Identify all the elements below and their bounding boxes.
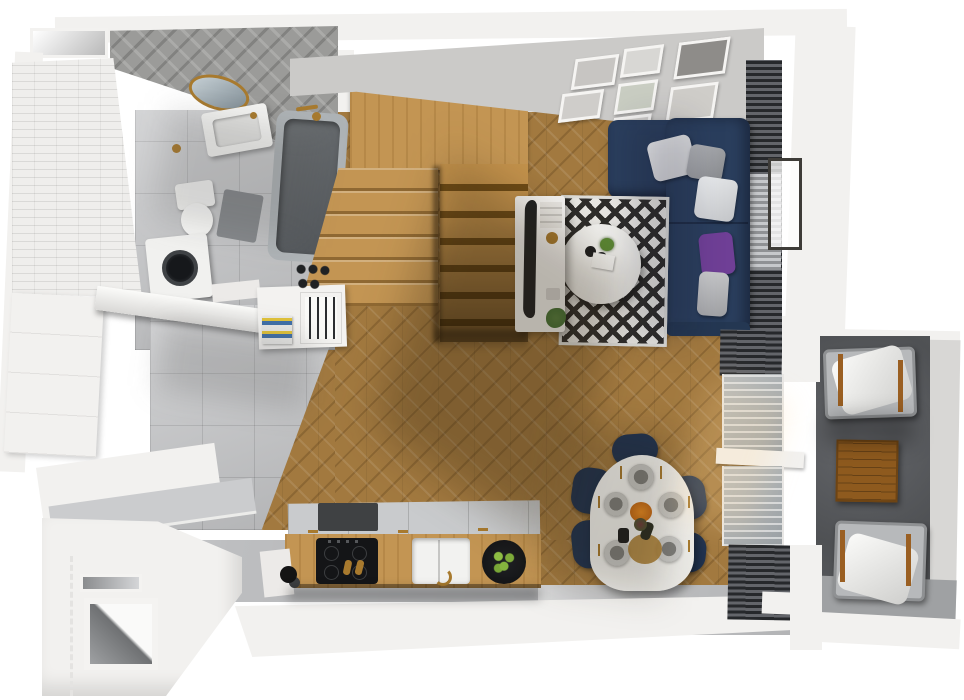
balcony-floor-light-edge	[817, 576, 957, 627]
outer-walls	[0, 0, 964, 700]
dining-chair-left-2	[570, 518, 615, 570]
dining-chair-right-2	[666, 530, 708, 574]
window-wall-corner	[782, 316, 820, 382]
utensil-2	[354, 559, 364, 575]
lounge-cushion-bottom	[835, 531, 920, 607]
shower-fixture	[296, 104, 318, 111]
balcony-right-wall	[924, 340, 961, 627]
washer-door	[162, 250, 198, 286]
balcony-chair-shadow	[828, 416, 912, 444]
centerpiece-vase	[634, 518, 647, 531]
top-outer-wall	[55, 9, 847, 43]
chair-top-wood-rail-2	[898, 360, 903, 412]
under-stair-shadow	[436, 330, 528, 352]
kitchen-sink	[412, 538, 470, 584]
living-wood-floor	[330, 112, 762, 550]
stair-right-flight	[440, 164, 528, 342]
cutlery-3	[598, 496, 600, 508]
bathtub	[267, 110, 349, 265]
sink-faucet	[250, 112, 257, 119]
hall-tile-floor	[150, 305, 330, 530]
radiator-dark-bottom	[727, 544, 792, 620]
gallery-frame-7	[610, 113, 652, 142]
stair-right-flight-shadow	[440, 164, 528, 342]
island-handle-1	[308, 530, 318, 533]
bottom-left-wall	[36, 443, 224, 537]
window-frame	[768, 158, 802, 250]
entrance-block	[42, 518, 242, 696]
toilet-tank	[174, 179, 215, 210]
entrance-niche	[84, 598, 158, 670]
sink-faucet-brass	[434, 568, 452, 586]
sofa-armrest	[666, 322, 750, 336]
fruit-apples	[490, 548, 518, 576]
top-left-wall-window	[30, 28, 108, 58]
cutlery-6	[688, 540, 690, 552]
kitchen	[0, 0, 964, 700]
light-and-shadow	[0, 0, 964, 700]
plate-right-1	[658, 492, 684, 518]
window-sill-bar	[716, 448, 805, 469]
island-front-shadow	[288, 588, 540, 600]
staircase	[0, 0, 964, 700]
dining-chair-right-1	[665, 474, 709, 523]
table-vase-1	[585, 246, 596, 257]
bathroom-stairs-divider-wall	[332, 50, 354, 342]
cutlery-drawer	[300, 292, 342, 344]
dining-table	[590, 455, 694, 591]
sink-basin	[212, 112, 262, 148]
right-outer-wall	[784, 25, 855, 349]
open-door-panel	[94, 286, 274, 335]
bathroom-tile-floor	[135, 110, 335, 350]
dining-area	[0, 0, 964, 700]
bottom-outer-wall	[235, 595, 810, 657]
cutlery-1	[620, 466, 622, 479]
shower-head	[312, 112, 321, 121]
tv-speaker	[546, 288, 560, 300]
living-room	[0, 0, 964, 700]
gallery-frame-5	[614, 79, 659, 115]
plate-top	[628, 464, 654, 490]
mirror-brass	[185, 68, 254, 118]
island-handle-2	[398, 530, 408, 533]
tv-gold-ornament	[546, 232, 558, 244]
centerpiece-wine-bottle	[639, 521, 655, 541]
sofa-main	[666, 118, 750, 332]
lounge-chair-bottom	[833, 520, 928, 601]
island-handle-3	[478, 528, 488, 531]
coffee-grinder	[280, 566, 297, 583]
bottom-left-worktop	[48, 478, 256, 542]
island-cabinet-tops	[288, 500, 540, 540]
sofa-chaise	[608, 120, 694, 198]
kitchen-marble-floor	[58, 540, 540, 602]
table-plant	[600, 238, 614, 251]
entrance-dashed-edge	[70, 556, 74, 696]
dining-gray-floor	[538, 585, 808, 635]
balcony-top-wall	[818, 329, 960, 349]
cutlery-2	[660, 466, 662, 479]
bath-mat	[216, 189, 264, 243]
living-top-wall	[290, 28, 764, 138]
entrance-letter-slot	[80, 574, 142, 592]
balcony-door-glass-1	[722, 374, 784, 454]
vanity-sink	[201, 103, 274, 158]
tv-sideboard	[515, 196, 565, 332]
window-wall-bottom	[790, 545, 822, 650]
balcony	[0, 0, 964, 700]
floors	[0, 0, 964, 700]
centerpiece-gold-tray	[628, 534, 662, 564]
cushion-white-2	[693, 175, 738, 222]
venetian-blinds	[746, 60, 782, 334]
hall-shadow	[156, 320, 314, 410]
coffee-table	[561, 224, 641, 304]
sofa-cast-shadow	[632, 120, 692, 340]
washer-shelf	[211, 280, 261, 303]
stair-gap-shadow	[433, 166, 441, 342]
chair-bottom-wood-rail-1	[840, 530, 845, 582]
stair-cast-shadow	[371, 159, 629, 542]
gallery-frame-6	[665, 82, 719, 125]
wall-hook-knobs	[296, 264, 330, 290]
dining-chair-top	[611, 432, 659, 467]
gallery-frame-4	[558, 89, 604, 123]
bookshelf-cabinet	[257, 284, 347, 349]
left-tall-cabinets	[4, 293, 104, 458]
plate-left-2	[604, 540, 630, 566]
burner-1	[324, 546, 339, 561]
utensil-1	[343, 559, 353, 575]
bathroom	[0, 0, 964, 700]
bathtub-basin	[275, 118, 340, 256]
gallery-frame-8	[656, 121, 702, 155]
dining-wood-floor	[538, 540, 738, 588]
lounge-cushion-top	[830, 343, 915, 417]
plate-right-2	[656, 536, 682, 562]
cooktop-controls	[328, 540, 364, 543]
diamond-rug	[559, 195, 670, 347]
bathroom-herringbone-wall	[110, 26, 338, 186]
plate-left-1	[604, 492, 628, 516]
cooktop	[316, 538, 378, 584]
throw-blanket	[697, 271, 730, 317]
lounge-chair-top	[823, 346, 917, 419]
stair-landing	[350, 86, 528, 170]
hall-wood-floor	[210, 335, 335, 530]
stair-left-flight	[300, 168, 438, 306]
burner-3	[324, 565, 339, 580]
dining-cast-shadow	[541, 420, 682, 595]
gallery-frame-2	[620, 44, 664, 78]
bottom-right-balcony-wall	[794, 611, 960, 650]
balcony-door-glass-2	[722, 466, 784, 546]
bathroom-subway-wall	[12, 58, 142, 298]
island-hood	[318, 503, 378, 531]
bathroom-shadow	[152, 108, 319, 242]
gallery-frame-3	[673, 36, 730, 79]
toilet-paper-holder	[172, 144, 181, 153]
balcony-table	[835, 439, 898, 502]
cushion-gray	[685, 143, 726, 183]
burner-2	[352, 546, 367, 561]
chair-bottom-wood-rail-2	[906, 534, 911, 586]
window-wall-stub	[762, 591, 793, 614]
island-worktop	[285, 534, 541, 588]
balcony-floor	[816, 336, 930, 626]
washing-machine	[145, 233, 213, 303]
centerpiece-jar	[618, 528, 629, 543]
table-book	[591, 252, 615, 271]
tv-screen	[523, 200, 537, 318]
floorplan-scene	[0, 0, 964, 700]
sofa-seam	[668, 222, 748, 224]
sun-patch	[668, 376, 791, 535]
books-stack	[262, 316, 292, 344]
chair-top-wood-rail-1	[838, 354, 843, 406]
fruit-bowl	[482, 540, 526, 584]
tv-plant	[546, 308, 566, 328]
cushion-purple	[698, 231, 736, 276]
cutlery-5	[598, 544, 600, 556]
centerpiece-orange-bowl	[630, 502, 652, 522]
cutlery-4	[688, 496, 690, 508]
dining-chair-left-1	[569, 465, 615, 516]
radiator-dark-top	[720, 329, 783, 376]
burner-4	[352, 565, 367, 580]
toilet-bowl	[179, 201, 215, 239]
left-outer-wall	[0, 52, 43, 473]
entrance-hall	[0, 0, 964, 700]
tv-books	[540, 202, 562, 228]
gallery-frame-1	[571, 54, 620, 90]
island-end-cabinet	[260, 549, 295, 598]
table-vase-2	[596, 252, 607, 263]
cushion-white-1	[646, 133, 698, 182]
sink-basin-line	[438, 540, 440, 582]
radiator-panel	[749, 174, 781, 270]
